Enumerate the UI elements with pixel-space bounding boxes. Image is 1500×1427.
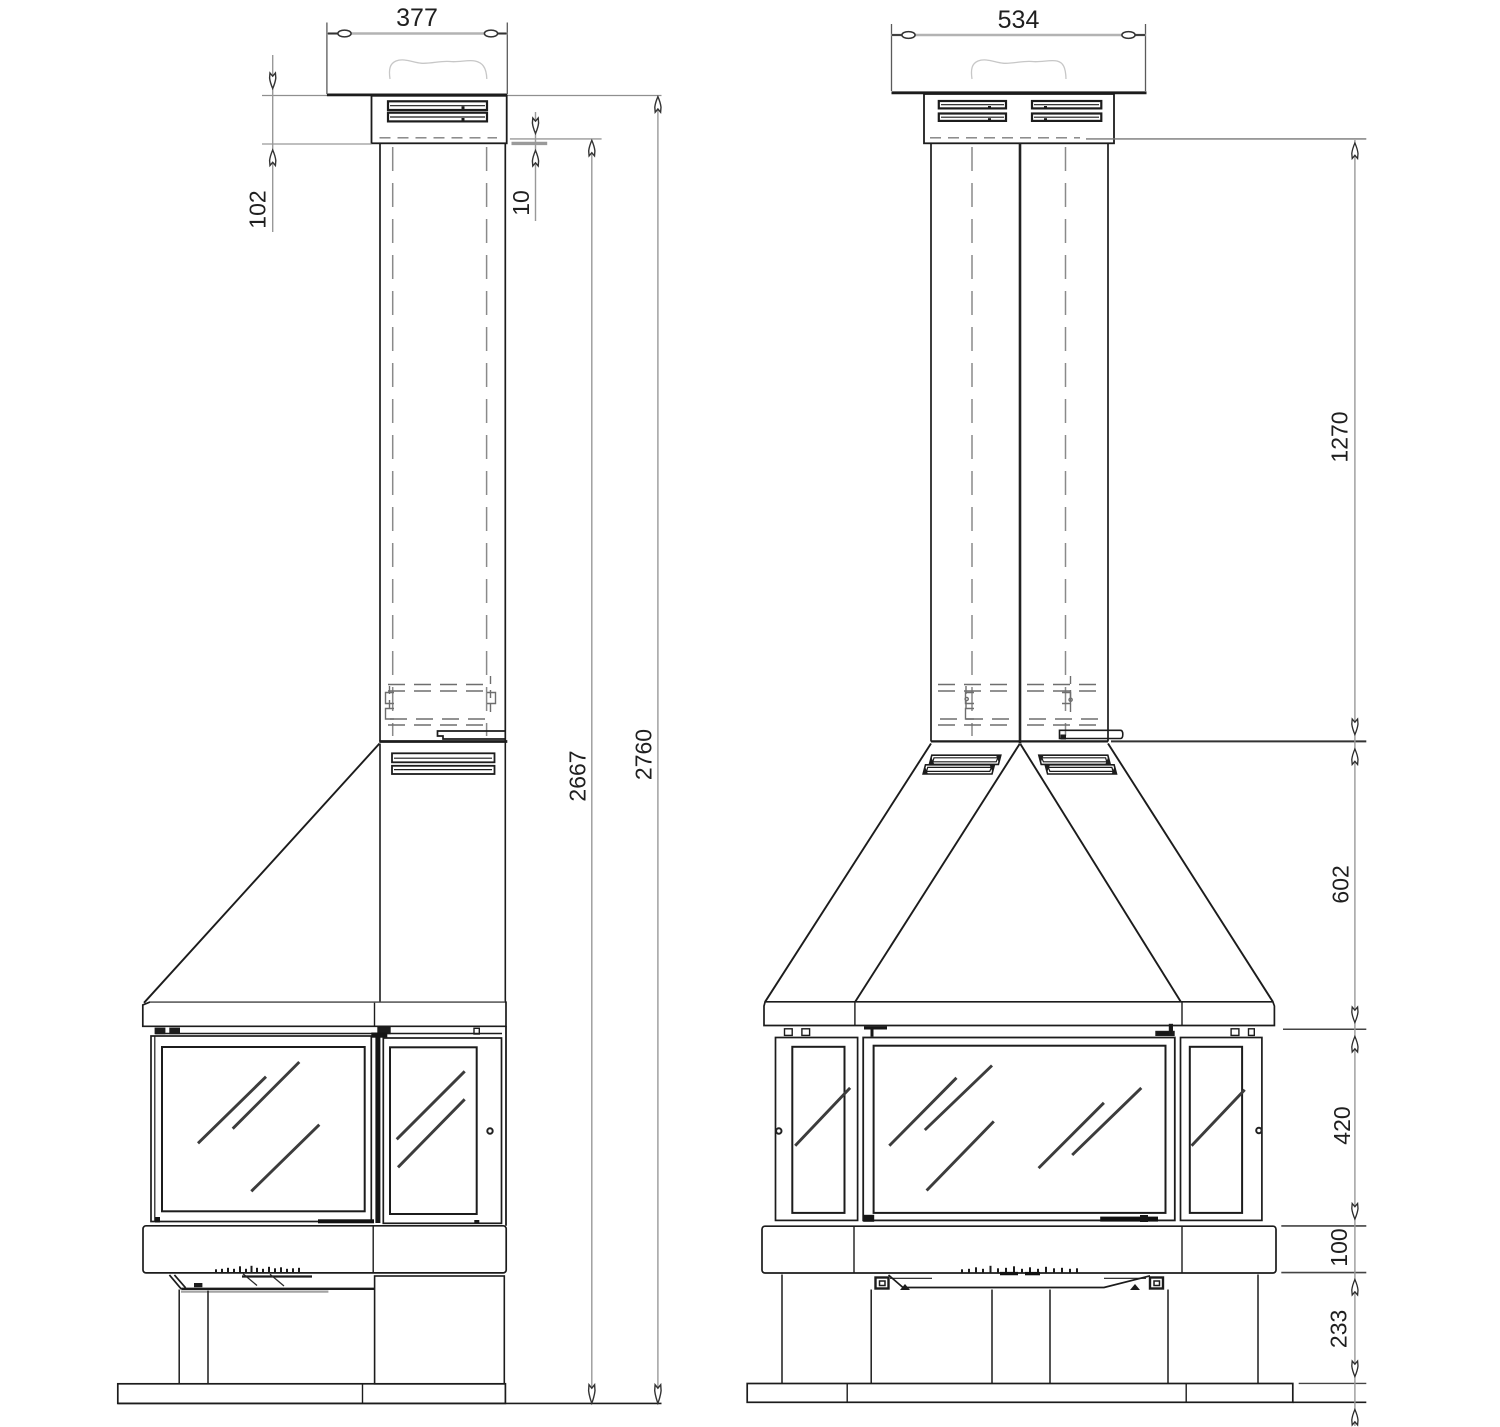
svg-text:102: 102 (245, 190, 271, 228)
svg-text:534: 534 (998, 6, 1040, 34)
svg-text:10: 10 (508, 190, 534, 216)
svg-text:2760: 2760 (631, 729, 657, 780)
svg-text:2667: 2667 (565, 750, 591, 801)
svg-text:100: 100 (1326, 1228, 1352, 1266)
svg-text:420: 420 (1329, 1106, 1355, 1144)
svg-text:377: 377 (396, 4, 438, 32)
svg-text:602: 602 (1327, 865, 1353, 903)
svg-text:1270: 1270 (1327, 411, 1353, 462)
svg-text:233: 233 (1325, 1310, 1351, 1348)
